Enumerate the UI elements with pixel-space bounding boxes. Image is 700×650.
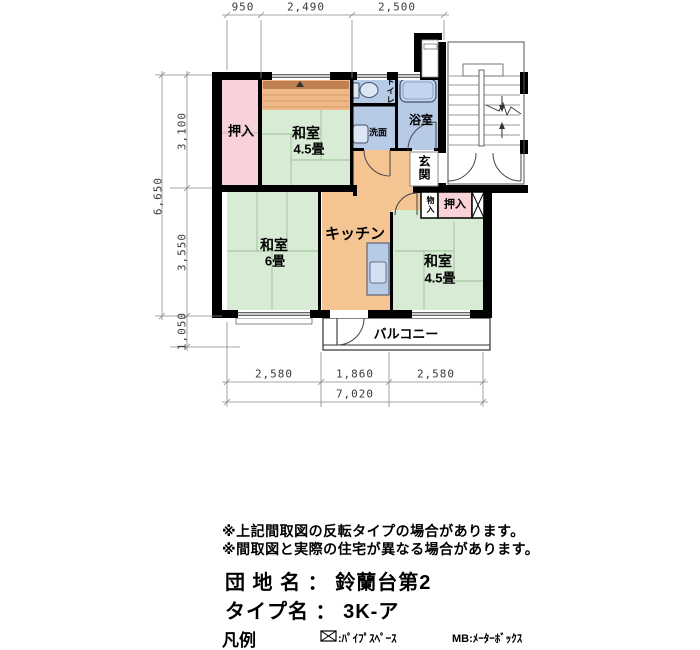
- stairwell: [448, 42, 524, 184]
- room-size-washitsu-a: 4.5畳: [293, 143, 324, 156]
- dim-bottom-1860: 1,860: [336, 368, 374, 381]
- balcony-structure: [236, 318, 490, 350]
- dim-top-2490: 2,490: [287, 1, 325, 14]
- entry-door-arc-left: [448, 153, 476, 181]
- balcony-door-gap: [330, 310, 368, 318]
- room-label-closet-right: 押入: [444, 200, 466, 211]
- legend-meter-box: MB:ﾒｰﾀｰﾎﾞｯｸｽ: [452, 630, 522, 646]
- room-label-closet-top: 押入: [228, 125, 254, 138]
- legend-pipe-space: :ﾊﾟｲﾌﾟｽﾍﾟｰｽ: [338, 630, 397, 646]
- entry-door-arc-right: [493, 153, 521, 181]
- dim-bottom-7020: 7,020: [336, 388, 374, 401]
- wall-mid: [212, 185, 357, 192]
- dim-bottom-2580b: 2,580: [417, 368, 455, 381]
- stair-arrow-up: [499, 122, 505, 129]
- hall-fill: [352, 150, 412, 190]
- dim-top-950: 950: [232, 1, 255, 14]
- note-line-1: ※上記間取図の反転タイプの場合があります。: [222, 521, 525, 541]
- alcove-band-strip: [263, 81, 349, 89]
- room-label-storage: 物入: [426, 196, 434, 214]
- toilet-bowl: [360, 83, 378, 98]
- room-label-genkan: 玄関: [418, 155, 430, 181]
- pipe-space-icon: [320, 630, 337, 642]
- stair-stringer: [479, 70, 484, 146]
- dim-bottom-2580a: 2,580: [255, 368, 293, 381]
- shaft-wall-top: [414, 33, 442, 40]
- dim-left-3550: 3,550: [176, 233, 189, 271]
- room-label-toilet: トイレ: [386, 78, 394, 105]
- wall-right-upper: [438, 42, 446, 153]
- room-label-balcony: バルコニー: [374, 328, 439, 341]
- estate-name-line: 団 地 名 ： 鈴蘭台第2: [225, 566, 431, 595]
- dim-left-6650: 6,650: [152, 177, 165, 215]
- wall-left: [212, 72, 222, 318]
- type-name-line: タイプ名 ： 3K-ア: [225, 595, 399, 624]
- room-label-washroom: 洗面: [369, 129, 387, 138]
- window-ledge: [236, 318, 312, 324]
- dim-left-1050: 1,050: [176, 312, 189, 350]
- floor-plan-page: 950 2,490 2,500 6,650 3,100 3,550 1,050 …: [0, 0, 700, 650]
- room-label-washitsu-c: 和室: [424, 254, 452, 268]
- room-label-kitchen: キッチン: [325, 227, 385, 242]
- note-line-2: ※間取図と実際の住宅が異なる場合があります。: [222, 539, 539, 559]
- room-size-washitsu-b: 6畳: [265, 255, 285, 268]
- dim-left-3100: 3,100: [176, 112, 189, 150]
- entrance-door-gap: [438, 153, 446, 183]
- washbasin: [353, 125, 368, 143]
- dim-top-2500: 2,500: [378, 1, 416, 14]
- legend-title: 凡例: [222, 626, 256, 650]
- room-size-washitsu-c: 4.5畳: [424, 272, 455, 285]
- room-label-bath: 浴室: [409, 114, 433, 126]
- toilet-tank: [353, 83, 359, 98]
- room-label-washitsu-b: 和室: [260, 238, 288, 252]
- room-label-washitsu-a: 和室: [292, 126, 320, 140]
